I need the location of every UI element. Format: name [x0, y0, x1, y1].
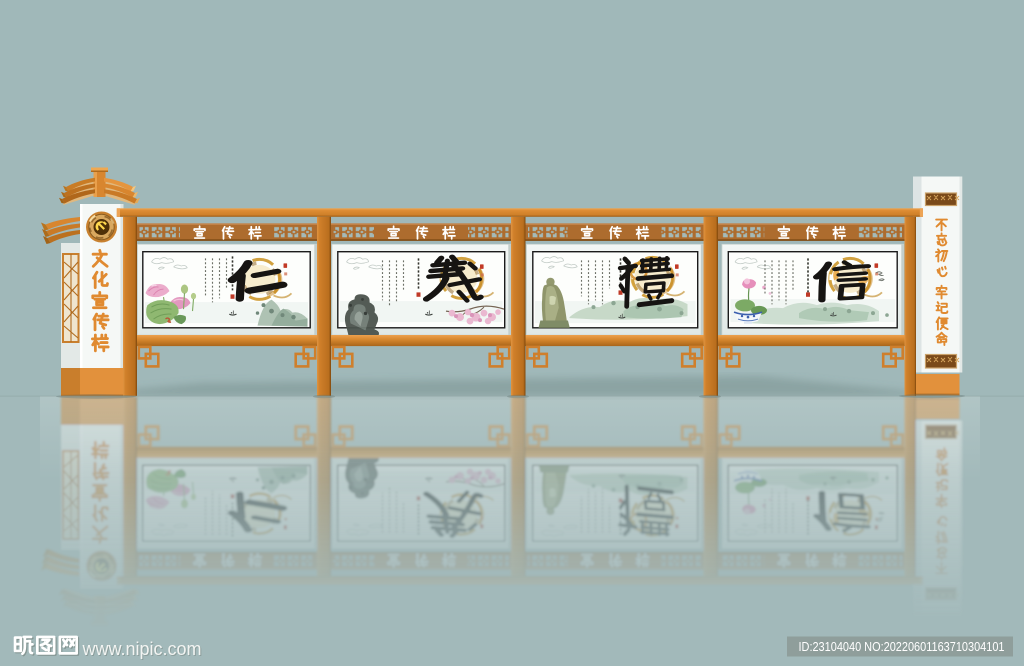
svg-text:www.nipic.com: www.nipic.com: [82, 639, 202, 659]
svg-text:ID:23104040 NO:202206011637103: ID:23104040 NO:20220601163710304101: [799, 639, 1005, 654]
